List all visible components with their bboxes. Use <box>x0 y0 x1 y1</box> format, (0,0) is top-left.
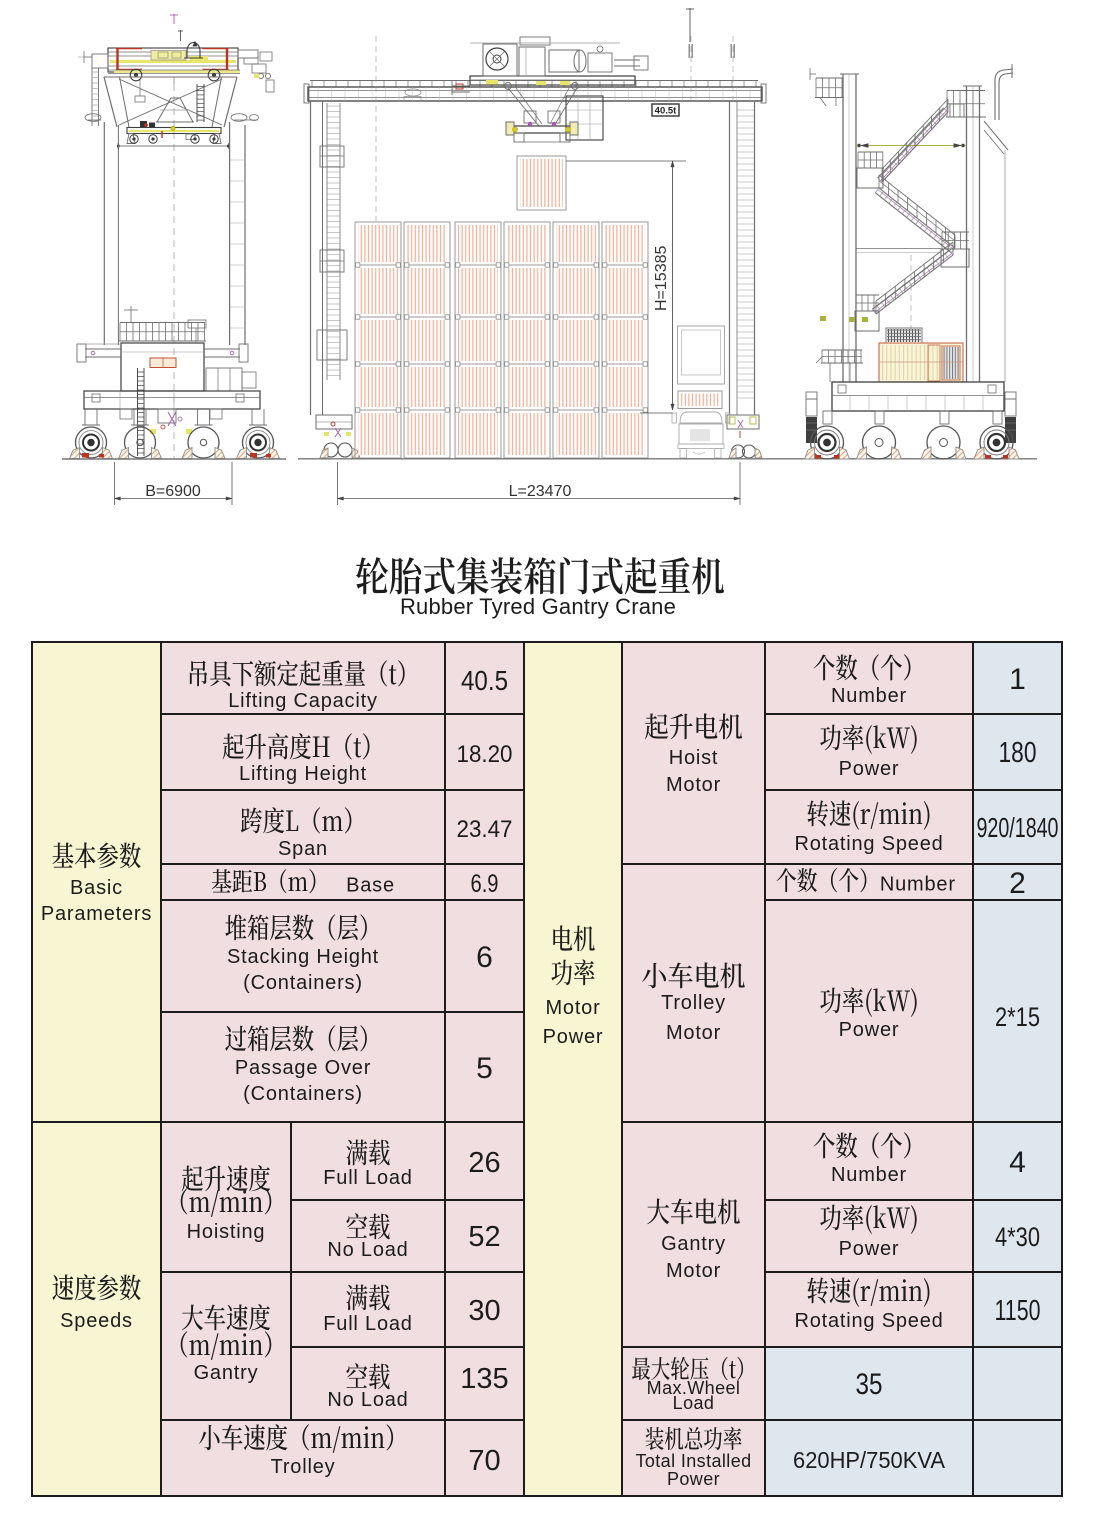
svg-text:920/1840: 920/1840 <box>977 812 1059 843</box>
svg-text:Base: Base <box>329 875 395 897</box>
svg-text:1150: 1150 <box>995 1295 1041 1327</box>
svg-text:Trolley: Trolley <box>271 1456 336 1478</box>
svg-text:Number: Number <box>831 1164 907 1186</box>
svg-text:70: 70 <box>468 1445 500 1477</box>
svg-text:180: 180 <box>999 737 1037 769</box>
svg-text:Full Load: Full Load <box>323 1313 412 1335</box>
svg-text:4*30: 4*30 <box>995 1222 1040 1252</box>
svg-text:Basic: Basic <box>70 877 123 899</box>
svg-text:Parameters: Parameters <box>41 903 152 925</box>
svg-text:Motor: Motor <box>666 1260 721 1282</box>
svg-text:Hoist: Hoist <box>669 747 719 769</box>
svg-text:Load: Load <box>673 1393 715 1413</box>
svg-text:30: 30 <box>468 1295 500 1327</box>
svg-text:Hoisting: Hoisting <box>187 1221 266 1243</box>
svg-text:Power: Power <box>667 1469 720 1489</box>
svg-text:Stacking Height: Stacking Height <box>227 946 379 968</box>
svg-text:Gantry: Gantry <box>194 1362 259 1384</box>
svg-text:Speeds: Speeds <box>60 1310 133 1332</box>
svg-text:Power: Power <box>839 1238 900 1260</box>
svg-text:4: 4 <box>1009 1146 1026 1179</box>
svg-text:2*15: 2*15 <box>995 1002 1040 1032</box>
svg-text:35: 35 <box>856 1368 883 1401</box>
svg-text:Rotating Speed: Rotating Speed <box>794 1310 943 1332</box>
svg-text:Motor: Motor <box>545 997 600 1019</box>
svg-text:Power: Power <box>839 1019 900 1041</box>
svg-text:H=15385: H=15385 <box>653 246 670 311</box>
svg-text:B=6900: B=6900 <box>145 483 201 500</box>
svg-text:Power: Power <box>543 1026 604 1048</box>
svg-text:Trolley: Trolley <box>661 992 726 1014</box>
svg-text:L=23470: L=23470 <box>509 483 572 500</box>
svg-text:23.47: 23.47 <box>457 816 513 843</box>
svg-text:Number: Number <box>880 874 956 896</box>
svg-text:40.5: 40.5 <box>461 665 508 696</box>
svg-text:Motor: Motor <box>666 1022 721 1044</box>
svg-text:No Load: No Load <box>327 1389 408 1411</box>
svg-text:26: 26 <box>468 1147 500 1179</box>
svg-text:Gantry: Gantry <box>661 1233 726 1255</box>
svg-text:Rotating Speed: Rotating Speed <box>794 833 943 855</box>
svg-text:6.9: 6.9 <box>471 870 499 898</box>
svg-text:(Containers): (Containers) <box>243 972 363 994</box>
svg-text:Rubber Tyred Gantry Crane: Rubber Tyred Gantry Crane <box>400 594 676 619</box>
svg-text:Span: Span <box>278 838 328 860</box>
svg-text:Lifting Height: Lifting Height <box>239 763 367 785</box>
svg-text:Total Installed: Total Installed <box>635 1451 751 1471</box>
svg-text:620HP/750KVA: 620HP/750KVA <box>793 1447 945 1473</box>
svg-text:Power: Power <box>839 758 900 780</box>
svg-text:Number: Number <box>831 685 907 707</box>
svg-text:2: 2 <box>1009 867 1026 900</box>
svg-text:18.20: 18.20 <box>457 741 513 768</box>
svg-text:(Containers): (Containers) <box>243 1083 363 1105</box>
svg-text:No Load: No Load <box>327 1239 408 1261</box>
svg-text:Full Load: Full Load <box>323 1167 412 1189</box>
svg-text:Passage Over: Passage Over <box>235 1057 371 1079</box>
svg-text:1: 1 <box>1009 663 1026 696</box>
svg-text:135: 135 <box>460 1363 508 1395</box>
svg-text:5: 5 <box>476 1052 493 1085</box>
svg-text:52: 52 <box>468 1221 500 1253</box>
svg-text:Lifting Capacity: Lifting Capacity <box>228 690 378 712</box>
svg-text:40.5t: 40.5t <box>655 106 677 117</box>
svg-text:6: 6 <box>476 941 493 974</box>
svg-text:Motor: Motor <box>666 774 721 796</box>
